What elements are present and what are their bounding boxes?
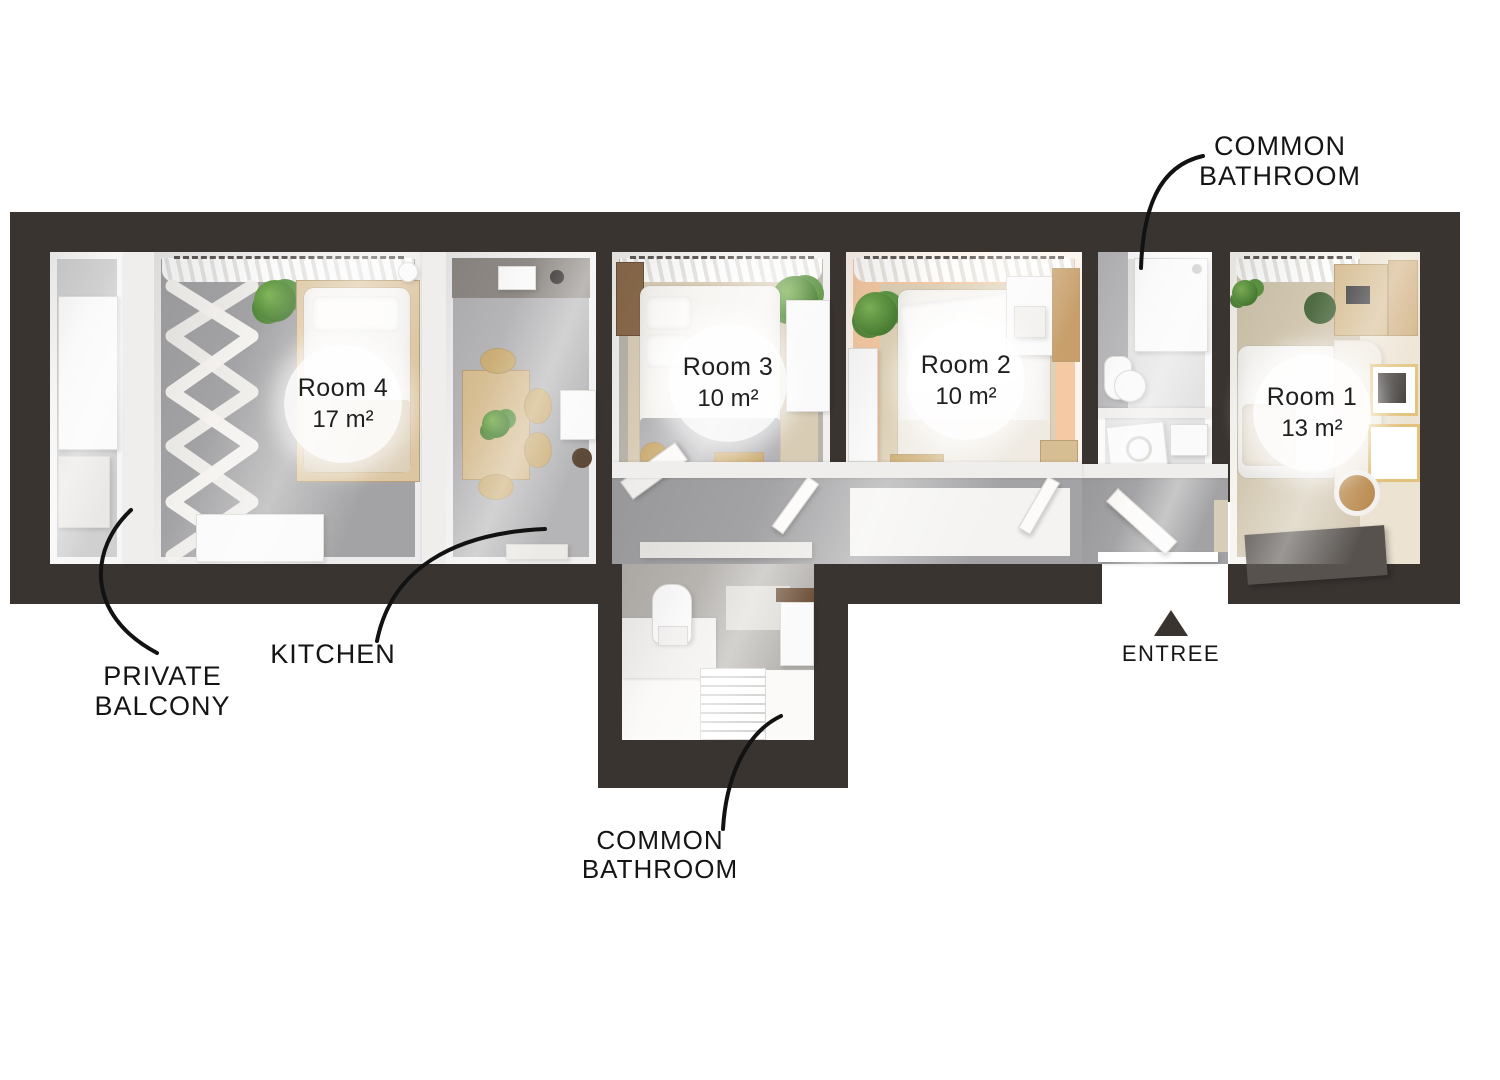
entree-arrow-icon: [1154, 610, 1188, 636]
bathroom-bottom-shower-bench: [700, 668, 766, 740]
label-common-bathroom-top-line1: COMMON: [1150, 132, 1410, 162]
label-common-bathroom-top-line2: BATHROOM: [1150, 162, 1410, 192]
label-entree-text: ENTREE: [1106, 642, 1236, 666]
wall-divider-room3-room2: [830, 252, 846, 476]
room3-desk: [786, 300, 830, 412]
room2-shelf: [1052, 268, 1080, 362]
kitchen: [446, 252, 596, 564]
room4-pillow: [312, 296, 400, 332]
wall-room4-kitchen: [422, 252, 446, 564]
room1-laptop-icon: [1346, 286, 1370, 304]
room2-label: Room 2 10 m²: [907, 322, 1025, 440]
common-bathroom-top: [1098, 252, 1212, 476]
bathroom-top-divider: [1098, 408, 1212, 418]
room2-area: 10 m²: [935, 383, 996, 411]
room1-picture-frame-1: [1370, 364, 1418, 416]
room1-label: Room 1 13 m²: [1253, 354, 1371, 472]
wall-protrusion-bottom: [702, 740, 848, 788]
kitchen-chair-top: [480, 348, 516, 374]
corridor: [612, 476, 1082, 564]
wall-corridor-top: [612, 462, 1082, 478]
common-bathroom-bottom: [622, 564, 814, 740]
room4-curtain-rail-icon: [174, 256, 404, 259]
bathroom-bottom-shelf: [776, 588, 814, 602]
hall-threshold: [1098, 552, 1218, 562]
bathroom-top-sink-icon: [1114, 370, 1146, 402]
kitchen-cabinet: [560, 390, 596, 440]
label-entree: ENTREE: [1106, 642, 1236, 666]
room2-plant-icon: [854, 292, 898, 336]
label-kitchen: KITCHEN: [238, 640, 428, 670]
label-private-balcony-line2: BALCONY: [55, 692, 270, 722]
room1-shelf: [1388, 260, 1418, 336]
room4-plant-icon: [254, 280, 296, 322]
label-common-bathroom-bottom-line1: COMMON: [555, 826, 765, 855]
balcony-bench: [58, 456, 110, 528]
kitchen-cooktop-icon: [550, 270, 564, 284]
entry-door-leaf: [1106, 488, 1177, 555]
wall-right: [1420, 212, 1460, 604]
label-common-bathroom-top: COMMON BATHROOM: [1150, 132, 1410, 191]
kitchen-sink-icon: [498, 266, 536, 290]
room4-area: 17 m²: [312, 406, 373, 434]
room4-lamp-icon: [398, 262, 418, 282]
floor-plan: Room 4 17 m² Room 3 10 m²: [0, 0, 1500, 1080]
frame-art-icon: [1378, 373, 1406, 403]
room2-curtain-rail-icon: [864, 256, 1064, 259]
label-private-balcony: PRIVATE BALCONY: [55, 662, 270, 721]
washing-machine-door-icon: [1126, 436, 1152, 462]
bathroom-bottom-sink: [780, 602, 814, 666]
room3-area: 10 m²: [697, 385, 758, 413]
wall-top: [10, 212, 1460, 252]
entry-hall: [1082, 476, 1228, 564]
room1-area: 13 m²: [1281, 415, 1342, 443]
wall-left: [10, 212, 50, 604]
hall-room1-threshold: [1214, 500, 1228, 552]
kitchen-mat: [506, 544, 568, 560]
room3-label: Room 3 10 m²: [669, 324, 787, 442]
wall-protrusion-left: [598, 564, 622, 692]
bathroom-top-shelf: [1170, 424, 1208, 456]
bathroom-top-showerhead-icon: [1192, 264, 1202, 274]
room3-curtain-rail-icon: [630, 256, 814, 259]
room3-door-leaf: [772, 476, 820, 534]
label-common-bathroom-bottom: COMMON BATHROOM: [555, 826, 765, 883]
room4-label: Room 4 17 m²: [284, 345, 402, 463]
label-common-bathroom-bottom-line2: BATHROOM: [555, 855, 765, 884]
wall-hall-top: [1082, 464, 1228, 478]
room2-name: Room 2: [921, 351, 1012, 380]
room1-picture-frame-2: [1368, 424, 1420, 482]
kitchen-table-plant-icon: [482, 410, 510, 438]
balcony-panel: [58, 296, 118, 450]
room3-name: Room 3: [683, 353, 774, 382]
room1-plant-icon: [1232, 280, 1258, 306]
wall-bottom-mid: [846, 564, 1070, 604]
wall-divider-room2-bath: [1082, 252, 1098, 476]
bathroom-bottom-toilet-tank-icon: [658, 626, 688, 646]
kitchen-stool-icon: [572, 448, 592, 468]
room1-desk-chair: [1304, 292, 1336, 324]
private-balcony: [50, 252, 124, 564]
room1-curtain-rail-icon: [1244, 256, 1352, 259]
kitchen-chair-right-1: [524, 388, 552, 424]
room4-chest: [196, 514, 324, 562]
label-kitchen-text: KITCHEN: [238, 640, 428, 670]
room1-stool-icon: [1334, 470, 1380, 516]
room1-name: Room 1: [1267, 383, 1358, 412]
corridor-mat: [640, 542, 812, 558]
wall-protrusion-right: [814, 564, 848, 740]
room4-name: Room 4: [298, 374, 389, 403]
wall-bottom-left: [10, 564, 602, 604]
kitchen-chair-bottom: [478, 474, 514, 500]
room3-pillow-1: [646, 296, 692, 330]
kitchen-chair-right-2: [524, 432, 552, 468]
room2-desk-chair: [1014, 306, 1046, 338]
wall-balcony-room4: [124, 252, 154, 564]
room1-storage-box: [1244, 525, 1387, 585]
room2-side-desk: [848, 348, 878, 462]
